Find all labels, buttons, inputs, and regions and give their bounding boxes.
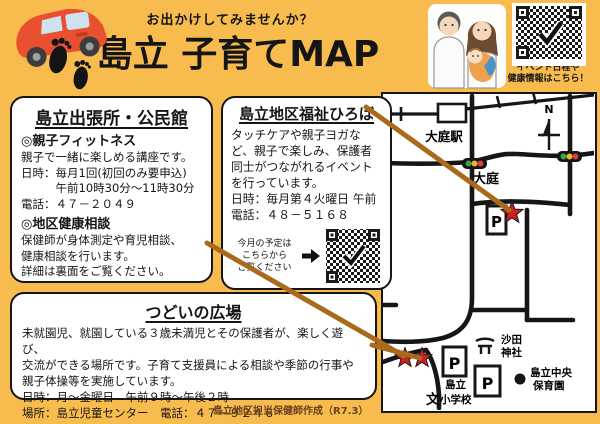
qr-note-line3: ご覧ください — [231, 262, 298, 274]
fitness-line: 電話：４７－２０４９ — [21, 197, 202, 213]
section-tsudoi-hiroba: つどいの広場 未就園児、就園している３歳未満児とその保護者が、楽しく遊び、 交流… — [10, 292, 377, 400]
shrine-label-line2: 神社 — [501, 346, 522, 359]
neighborhood-map: 大庭駅 大庭 N P P P 沙田 神社 島立中央 保育 — [381, 92, 597, 413]
qr-caption-line2: 健康情報はこちら！ — [504, 74, 592, 85]
section-community-center: 島立出張所・公民館 ◎親子フィットネス 親子で一緒に楽しめる講座です。 日時：毎… — [10, 96, 213, 283]
school-label-line2: 小学校 — [439, 393, 472, 406]
fukushi-line: 日時：毎月第４火曜日 午前 — [231, 191, 382, 207]
tsudoi-title: つどいの広場 — [22, 299, 365, 323]
parking-icon: P — [449, 354, 461, 373]
qr-note: 今月の予定は こちらから ご覧ください — [231, 238, 298, 274]
station-box — [438, 104, 466, 122]
station-label: 大庭駅 — [425, 129, 463, 144]
qr-code-icon — [512, 3, 586, 66]
fukushi-line: を行っています。 — [231, 175, 382, 191]
health-consult-line: 詳細は裏面をご覧ください。 — [21, 264, 202, 280]
parking-icon: P — [491, 213, 502, 231]
qr-code-icon — [324, 227, 382, 285]
nursery-dot-icon — [515, 374, 526, 385]
credit-note: 島立地区担当保健師作成（R7.3） — [213, 402, 368, 417]
fukushi-line: ど、親子で楽しみ、保護者 — [231, 143, 382, 159]
fitness-heading: ◎親子フィットネス — [21, 134, 202, 150]
roads — [383, 96, 594, 408]
health-consult-line: 保健師が身体測定や育児相談、 — [21, 233, 202, 249]
nursery-label-line1: 島立中央 — [530, 366, 572, 379]
qr-note-line2: こちらから — [231, 250, 298, 262]
fitness-line: 日時：毎月1回(初回のみ要申込) — [21, 166, 202, 182]
fukushi-line: タッチケアや親子ヨガな — [231, 127, 382, 143]
page-title: 島立 子育てMAP — [88, 25, 388, 77]
school-label-line1: 島立 — [445, 378, 466, 391]
qr-note-line1: 今月の予定は — [231, 238, 298, 250]
fukushi-line: 同士がつながれるイベント — [231, 159, 382, 175]
railway-line — [383, 94, 594, 121]
star-marker — [395, 348, 415, 367]
fukushi-hiroba-title: 島立地区福祉ひろば — [231, 103, 382, 124]
shrine-label-line1: 沙田 — [501, 334, 522, 346]
family-illustration — [428, 4, 506, 94]
parking-icon: P — [482, 374, 494, 393]
fitness-line: 午前10時30分～11時30分 — [21, 181, 202, 197]
community-center-title: 島立出張所・公民館 — [21, 104, 202, 129]
torii-icon — [476, 339, 494, 354]
car-and-footprints-illustration — [6, 2, 118, 96]
health-consult-heading: ◎地区健康相談 — [21, 217, 202, 233]
fukushi-line: 電話：４８－５１６８ — [231, 207, 382, 223]
nursery-label-line2: 保育園 — [532, 379, 565, 392]
tsudoi-line: 未就園児、就園している３歳未満児とその保護者が、楽しく遊び、 — [22, 325, 365, 357]
north-arrow-icon: N — [538, 103, 560, 150]
health-consult-line: 健康相談を行います。 — [21, 249, 202, 265]
traffic-light-icon — [557, 151, 582, 162]
tsudoi-line: 親子体操等を実施しています。 — [22, 373, 365, 389]
svg-text:N: N — [544, 103, 553, 116]
tsudoi-line: 交流ができる場所です。子育て支援員による相談や季節の行事や — [22, 357, 365, 373]
section-fukushi-hiroba: 島立地区福祉ひろば タッチケアや親子ヨガな ど、親子で楽しみ、保護者 同士がつな… — [221, 96, 392, 290]
map-drawing: 大庭駅 大庭 N P P P 沙田 神社 島立中央 保育 — [383, 94, 594, 410]
school-symbol-icon: 文 — [426, 391, 440, 408]
arrow-right-icon — [302, 249, 320, 263]
fitness-line: 親子で一緒に楽しめる講座です。 — [21, 150, 202, 166]
traffic-light-icon — [462, 158, 487, 169]
oba-label: 大庭 — [473, 171, 500, 187]
